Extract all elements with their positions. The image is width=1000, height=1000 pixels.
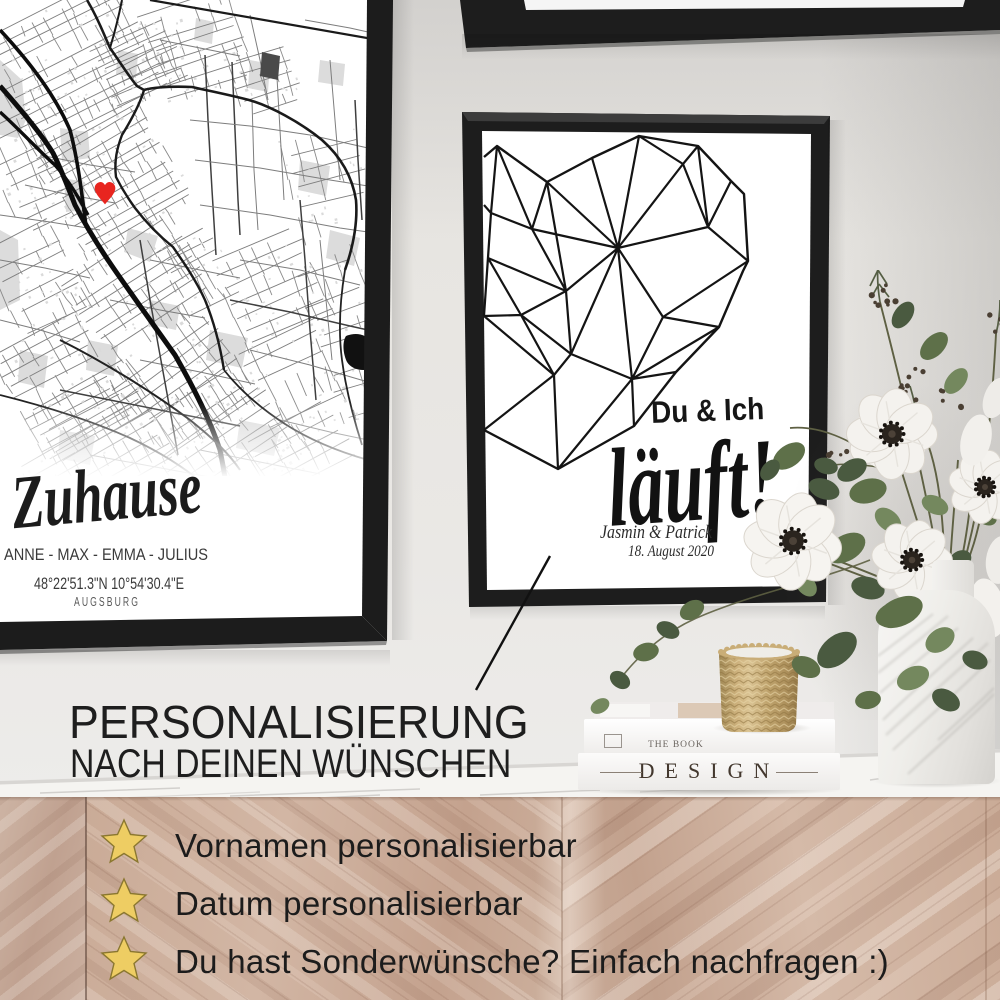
svg-text:AUGSBURG: AUGSBURG <box>74 595 140 609</box>
svg-text:Zuhause: Zuhause <box>8 445 205 545</box>
svg-text:ANNE - MAX - EMMA - JULIUS: ANNE - MAX - EMMA - JULIUS <box>4 545 208 564</box>
svg-text:48°22'51.3"N 10°54'30.4"E: 48°22'51.3"N 10°54'30.4"E <box>34 574 184 593</box>
